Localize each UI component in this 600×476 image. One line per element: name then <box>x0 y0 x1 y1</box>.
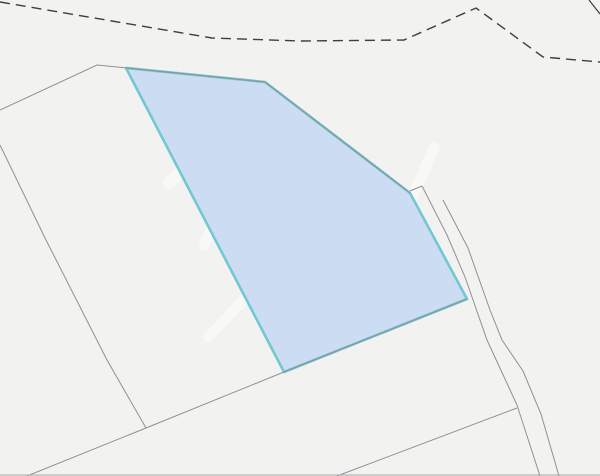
cadastral-map[interactable] <box>0 0 600 476</box>
map-viewport[interactable] <box>0 0 600 476</box>
